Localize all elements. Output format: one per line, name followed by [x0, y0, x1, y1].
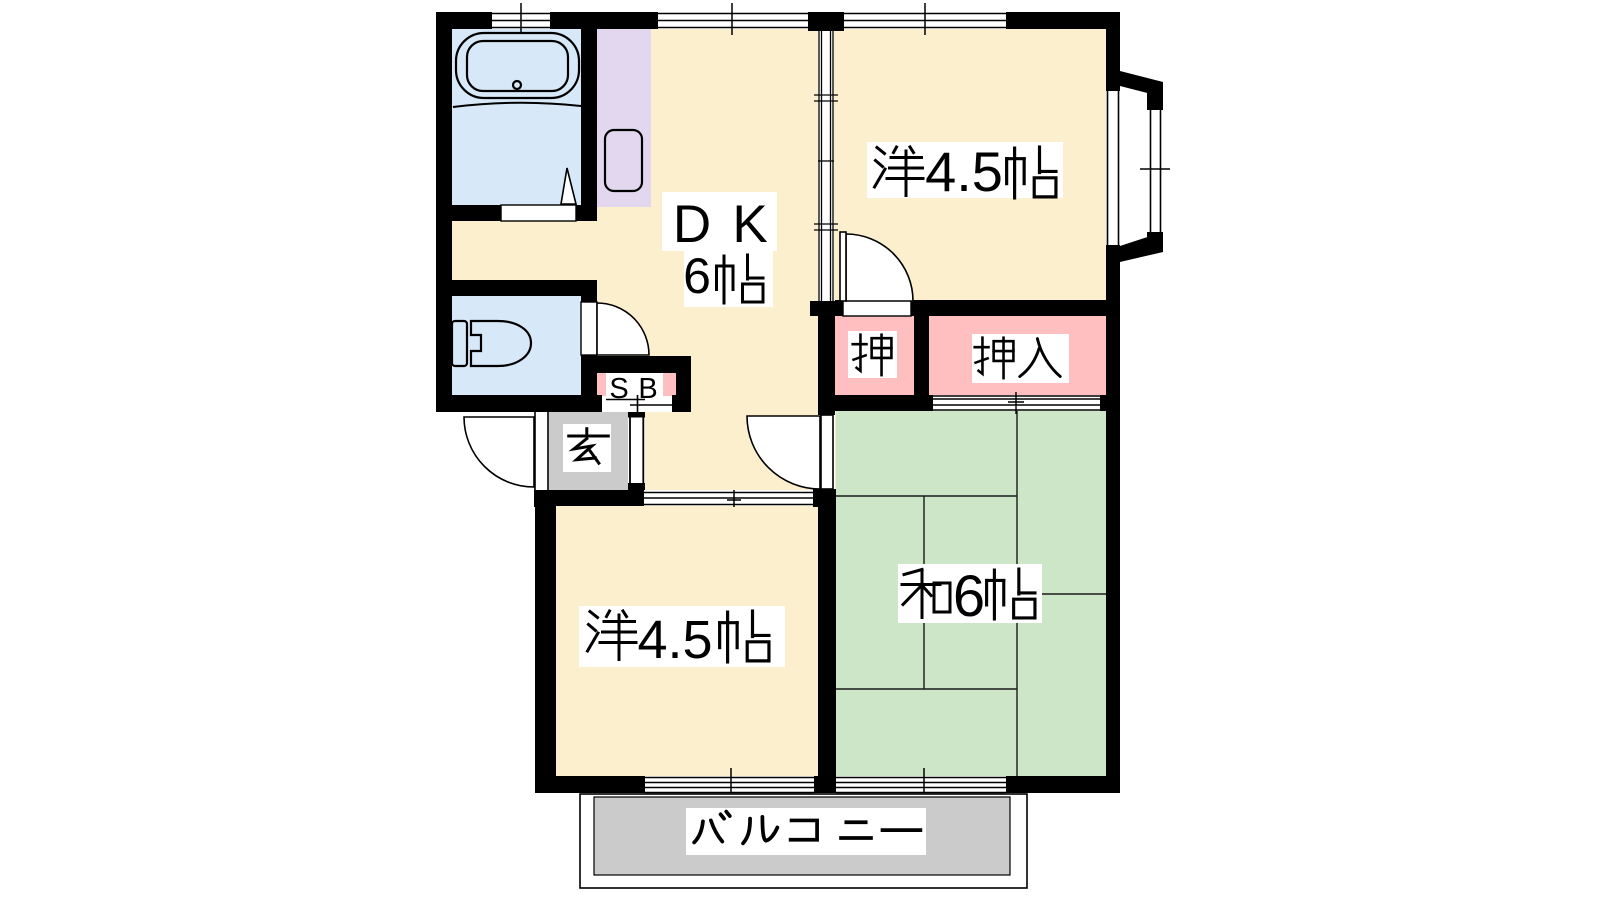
svg-text:4.5: 4.5	[925, 140, 1003, 203]
svg-text:K: K	[732, 195, 767, 254]
svg-text:6: 6	[953, 564, 985, 629]
svg-text:6: 6	[683, 248, 711, 304]
svg-text:D: D	[673, 195, 711, 254]
svg-text:4.5: 4.5	[637, 610, 712, 670]
